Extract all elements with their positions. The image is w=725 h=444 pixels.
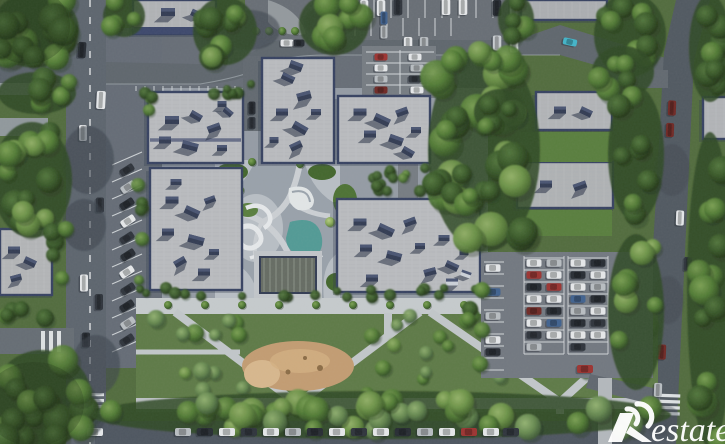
svg-text:estate: estate [651, 412, 725, 444]
